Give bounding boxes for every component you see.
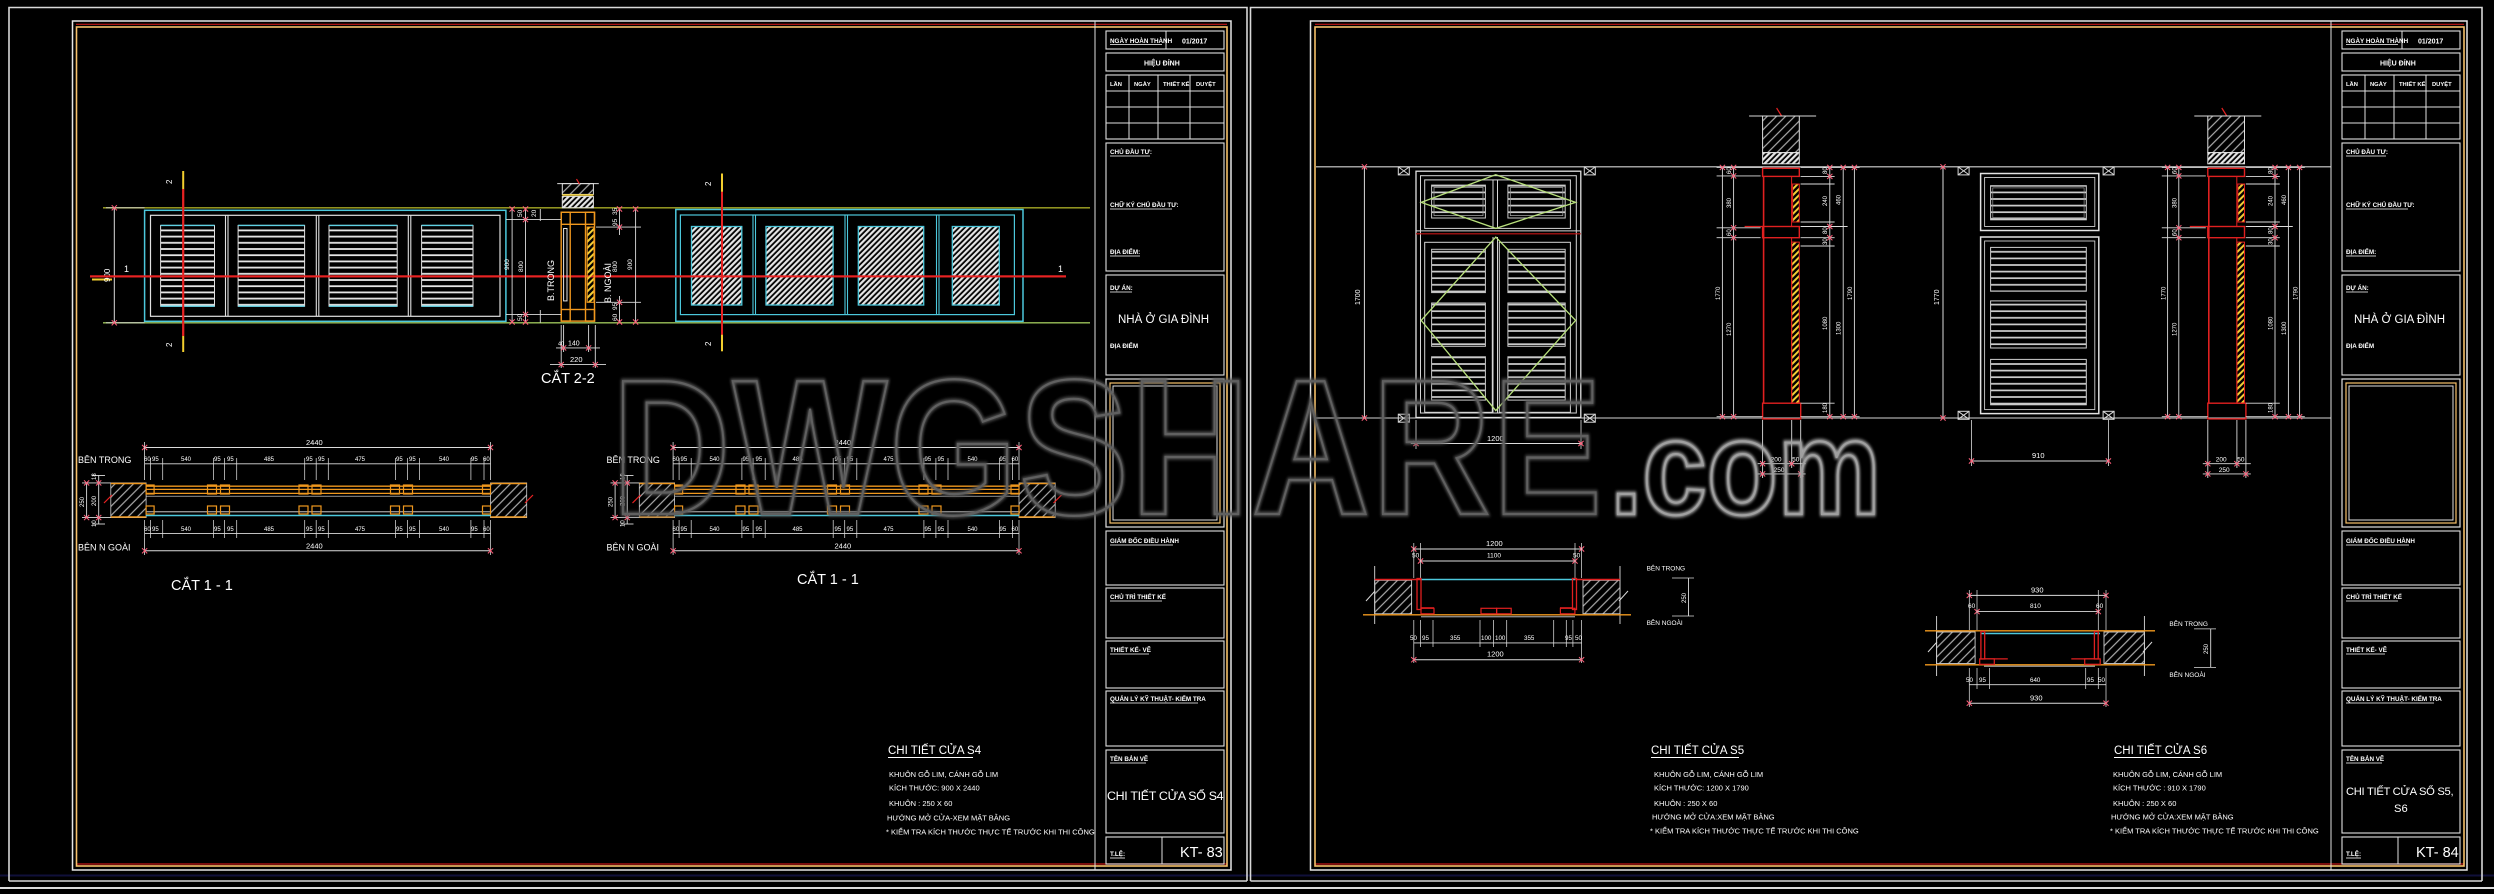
svg-text:1: 1 (1058, 264, 1063, 274)
svg-text:2: 2 (165, 342, 174, 347)
svg-text:800: 800 (612, 261, 619, 272)
svg-text:800: 800 (518, 261, 525, 272)
svg-text:* KIỂM TRA KÍCH THƯỚC THỰC TẾ: * KIỂM TRA KÍCH THƯỚC THỰC TẾ TRƯỚC KHI … (886, 827, 1095, 837)
svg-text:KT- 83: KT- 83 (1180, 845, 1223, 861)
svg-text:930: 930 (2031, 586, 2044, 595)
svg-text:95: 95 (1422, 635, 1429, 642)
svg-text:KHUÔN GỖ LIM, CÁNH GỖ LIM: KHUÔN GỖ LIM, CÁNH GỖ LIM (2113, 770, 2222, 779)
svg-text:* KIỂM TRA KÍCH THƯỚC THỰC TẾ: * KIỂM TRA KÍCH THƯỚC THỰC TẾ TRƯỚC KHI … (2110, 826, 2319, 836)
svg-text:KÍCH THƯỚC: 900 X 2440: KÍCH THƯỚC: 900 X 2440 (889, 784, 980, 793)
svg-text:BÊN TRONG: BÊN TRONG (2169, 619, 2208, 628)
svg-text:KHUÔN GỖ LIM, CÁNH GỖ LIM: KHUÔN GỖ LIM, CÁNH GỖ LIM (889, 770, 998, 779)
svg-text:KÍCH THƯỚC : 910 X 1790: KÍCH THƯỚC : 910 X 1790 (2113, 784, 2206, 793)
svg-text:1200: 1200 (1487, 650, 1504, 659)
svg-text:355: 355 (1524, 635, 1535, 642)
svg-text:DWGSHARE: DWGSHARE (612, 339, 1604, 555)
svg-text:2: 2 (165, 179, 174, 184)
svg-text:KT- 84: KT- 84 (2416, 845, 2459, 861)
svg-text:HƯỚNG MỞ CỬA:XEM MẶT BẰNG: HƯỚNG MỞ CỬA:XEM MẶT BẰNG (1652, 812, 1775, 821)
svg-text:KHUÔN : 250 X 60: KHUÔN : 250 X 60 (889, 799, 952, 808)
svg-text:250: 250 (1682, 592, 1688, 603)
svg-text:20: 20 (531, 209, 538, 217)
svg-text:BÊN NGOÀI: BÊN NGOÀI (2169, 670, 2205, 679)
svg-text:50: 50 (1575, 635, 1582, 642)
svg-text:900: 900 (103, 268, 112, 282)
svg-text:95: 95 (1565, 635, 1572, 642)
svg-text:KHUÔN GỖ LIM, CÁNH GỖ LIM: KHUÔN GỖ LIM, CÁNH GỖ LIM (1654, 770, 1763, 779)
svg-text:HƯỚNG MỞ CỬA-XEM MẶT BẰNG: HƯỚNG MỞ CỬA-XEM MẶT BẰNG (887, 814, 1010, 823)
svg-text:HƯỚNG MỞ CỬA:XEM MẶT BẰNG: HƯỚNG MỞ CỬA:XEM MẶT BẰNG (2111, 812, 2234, 821)
svg-text:CHI TIẾT CỬA S4: CHI TIẾT CỬA S4 (888, 744, 982, 757)
svg-text:60: 60 (612, 313, 619, 321)
svg-text:40: 40 (558, 342, 564, 348)
svg-text:95: 95 (612, 302, 619, 310)
svg-text:910: 910 (2032, 451, 2045, 460)
svg-text:640: 640 (2030, 677, 2041, 684)
svg-text:* KIỂM TRA KÍCH THƯỚC THỰC TẾ: * KIỂM TRA KÍCH THƯỚC THỰC TẾ TRƯỚC KHI … (1650, 826, 1859, 836)
svg-text:B.TRONG: B.TRONG (546, 260, 556, 301)
svg-text:CHI TIẾT CỬA S6: CHI TIẾT CỬA S6 (2114, 744, 2207, 757)
svg-text:900: 900 (627, 259, 634, 270)
svg-text:930: 930 (2030, 694, 2043, 703)
svg-text:BÊN TRONG: BÊN TRONG (1647, 564, 1686, 573)
svg-text:355: 355 (1450, 635, 1461, 642)
svg-text:CẮT 1 - 1: CẮT 1 - 1 (797, 570, 859, 588)
svg-text:140: 140 (568, 341, 580, 348)
svg-text:50: 50 (2098, 677, 2105, 684)
svg-text:95: 95 (1979, 677, 1986, 684)
svg-text:KÍCH THƯỚC: 1200 X 1790: KÍCH THƯỚC: 1200 X 1790 (1654, 784, 1749, 793)
svg-text:1700: 1700 (1355, 289, 1362, 305)
svg-text:KHUÔN : 250 X 60: KHUÔN : 250 X 60 (1654, 799, 1717, 808)
svg-text:50: 50 (517, 313, 524, 321)
svg-text:S6: S6 (2394, 803, 2408, 815)
svg-text:900: 900 (504, 259, 511, 270)
svg-text:.com: .com (1610, 392, 1881, 543)
svg-text:CHI TIẾT CỬA SỔ S4: CHI TIẾT CỬA SỔ S4 (1107, 788, 1224, 803)
svg-text:1770: 1770 (1934, 289, 1941, 305)
svg-text:35: 35 (612, 207, 619, 215)
svg-text:CẮT 2-2: CẮT 2-2 (541, 369, 595, 387)
svg-text:CHI TIẾT CỬA SỔ S5,: CHI TIẾT CỬA SỔ S5, (2346, 785, 2453, 798)
svg-text:CHI TIẾT CỬA S5: CHI TIẾT CỬA S5 (1651, 744, 1744, 757)
svg-text:50: 50 (1410, 635, 1417, 642)
svg-text:220: 220 (570, 355, 583, 364)
svg-text:95: 95 (2087, 677, 2094, 684)
svg-text:95: 95 (612, 218, 619, 226)
svg-text:100: 100 (1481, 635, 1492, 642)
svg-text:2: 2 (704, 181, 713, 186)
svg-text:KHUÔN : 250 X 60: KHUÔN : 250 X 60 (2113, 799, 2176, 808)
svg-text:1: 1 (124, 264, 129, 274)
svg-text:50: 50 (517, 209, 524, 217)
svg-text:60: 60 (2096, 603, 2104, 610)
svg-text:250: 250 (2204, 643, 2210, 654)
svg-text:810: 810 (2030, 603, 2041, 610)
svg-text:BÊN NGOÀI: BÊN NGOÀI (1647, 618, 1683, 627)
svg-text:100: 100 (1495, 635, 1506, 642)
svg-text:CẮT 1 - 1: CẮT 1 - 1 (171, 576, 233, 594)
svg-text:50: 50 (1966, 677, 1973, 684)
